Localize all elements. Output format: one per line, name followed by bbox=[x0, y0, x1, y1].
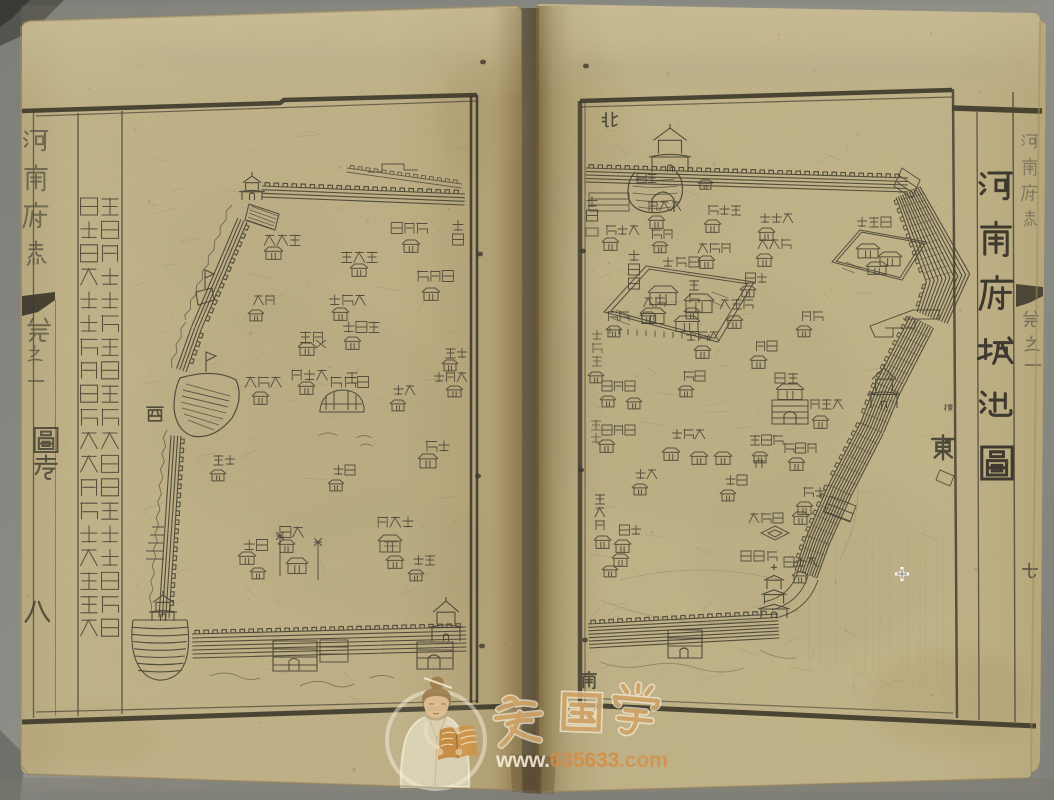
svg-text:www.635633.com: www.635633.com bbox=[495, 748, 668, 772]
